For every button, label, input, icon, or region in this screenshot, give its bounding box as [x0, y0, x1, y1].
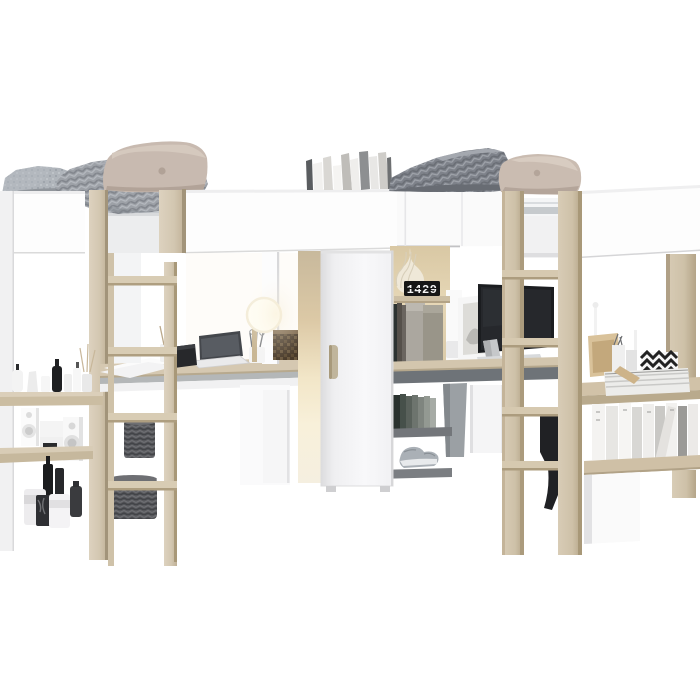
- svg-text:1429: 1429: [407, 283, 438, 297]
